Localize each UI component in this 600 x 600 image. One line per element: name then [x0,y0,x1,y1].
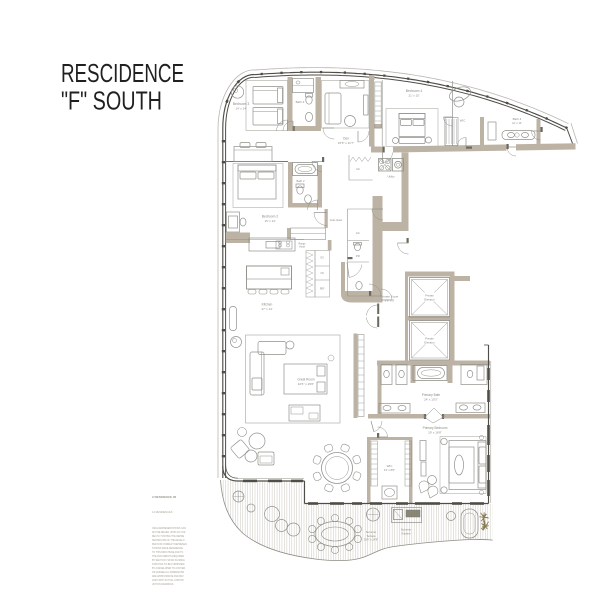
svg-text:Bedroom 3: Bedroom 3 [233,102,250,106]
svg-text:12 RESIDENCES: 12 RESIDENCES [152,510,173,514]
svg-text:Utility: Utility [387,175,395,179]
svg-text:FR: FR [321,273,324,275]
svg-text:NOT BE RELIED UPON AS COR: NOT BE RELIED UPON AS COR [152,531,186,534]
svg-text:DO: DO [320,258,324,260]
svg-text:AC: AC [356,167,360,171]
svg-text:2 RESIDENCE 06: 2 RESIDENCE 06 [152,495,177,499]
svg-text:OR LESSEE ALL DIMENSIONS: OR LESSEE ALL DIMENSIONS [152,571,185,574]
svg-text:15'5" x 11'7": 15'5" x 11'7" [338,141,354,145]
svg-text:21' x 15': 21' x 15' [409,94,420,98]
svg-text:Elevator: Elevator [424,298,434,302]
svg-text:THE DOCUMENTS REQUIRED: THE DOCUMENTS REQUIRED [152,556,185,558]
svg-text:UCTION DRAWINGS: UCTION DRAWINGS [152,583,174,586]
svg-text:Bath 3: Bath 3 [296,100,305,104]
svg-text:ORAL REPRESENTATIONS CAN: ORAL REPRESENTATIONS CAN [152,527,186,530]
svg-text:ARE APPROXIMATE AND MAY: ARE APPROXIMATE AND MAY [152,575,184,578]
svg-text:24' x 10'3": 24' x 10'3" [424,397,438,401]
svg-text:RESCIDENCE: RESCIDENCE [61,58,184,88]
svg-text:BY SECTION 718.503 FLORIDA: BY SECTION 718.503 FLORIDA [152,559,185,562]
svg-text:13' x 8'6": 13' x 8'6" [384,468,395,472]
svg-text:14' x 14': 14' x 14' [236,107,247,111]
svg-text:Primary Bedroom: Primary Bedroom [423,426,448,430]
svg-text:Terrace: Terrace [366,534,376,538]
svg-text:53'6" x 14'9": 53'6" x 14'9" [364,538,378,542]
svg-text:PR: PR [356,254,360,258]
svg-text:"F" SOUTH: "F" SOUTH [61,86,162,116]
svg-text:11' x 11': 11' x 11' [512,121,522,125]
svg-text:Bedroom 4: Bedroom 4 [406,89,423,93]
svg-text:AC: AC [356,231,360,235]
svg-text:WIC: WIC [460,119,465,123]
svg-text:Great Room: Great Room [297,378,315,382]
svg-text:Coat closet: Coat closet [330,219,343,222]
svg-text:TATIONS MAKE REFERENCE: TATIONS MAKE REFERENCE [152,547,183,550]
svg-text:REF: REF [320,289,325,291]
svg-text:RECTLY STATING THE REPRE: RECTLY STATING THE REPRE [152,535,185,538]
svg-text:SENTATIONS OF THE DEVELO: SENTATIONS OF THE DEVELO [152,539,185,542]
svg-text:TO THIS BROCHURE AND TO: TO THIS BROCHURE AND TO [152,551,183,554]
svg-text:Bath 2: Bath 2 [296,179,305,183]
svg-text:STATUTES TO BE FURNISHED: STATUTES TO BE FURNISHED [152,563,185,566]
svg-text:Elevator: Elevator [424,341,434,345]
svg-text:BY A DEVELOPER TO A BUYER: BY A DEVELOPER TO A BUYER [152,567,186,570]
svg-text:VARY WITH ACTUAL CONSTR: VARY WITH ACTUAL CONSTR [152,579,184,582]
svg-text:Hood: Hood [299,246,305,249]
svg-text:19' x 16'8": 19' x 16'8" [428,431,442,435]
svg-text:5'6" x 8': 5'6" x 8' [385,299,395,303]
svg-text:42'6" x 29'6": 42'6" x 29'6" [298,382,314,386]
svg-text:PER FOR CORRECT REPRESEN: PER FOR CORRECT REPRESEN [152,544,187,546]
svg-text:Bedroom 2: Bedroom 2 [262,215,279,219]
svg-text:27' x 14': 27' x 14' [262,307,273,311]
svg-text:Kitchen: Kitchen [401,531,411,535]
svg-text:15' x 14': 15' x 14' [265,219,276,223]
